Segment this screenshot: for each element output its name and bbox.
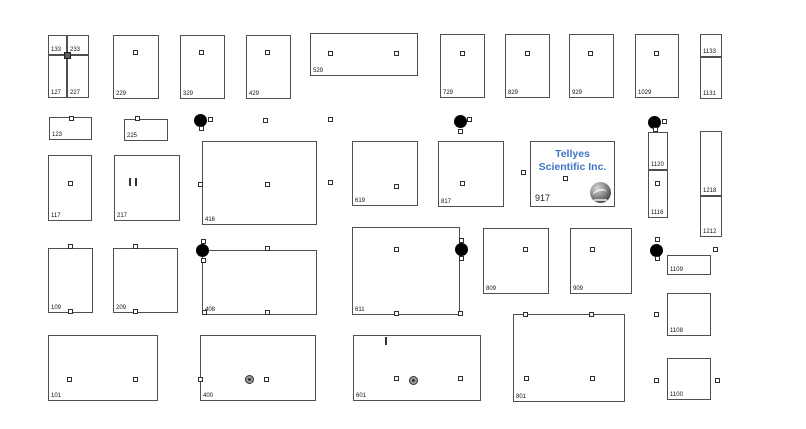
booth-number-label: 1120: [651, 162, 664, 168]
booth-number-label: 801: [516, 394, 526, 400]
square-marker-icon: [265, 50, 270, 55]
square-marker-icon: [265, 182, 270, 187]
booth-225[interactable]: 225: [124, 119, 168, 141]
booth-917-tellyes[interactable]: Tellyes Scientific Inc. 917: [530, 141, 615, 207]
booth-127[interactable]: 127: [48, 55, 67, 98]
booth-number-label: 1109: [670, 267, 683, 273]
square-marker-icon: [265, 246, 270, 251]
booth-1109[interactable]: 1109: [667, 255, 711, 275]
square-marker-icon: [198, 182, 203, 187]
exhibitor-name-line2: Scientific Inc.: [531, 161, 614, 174]
square-marker-icon: [525, 51, 530, 56]
square-marker-icon: [394, 51, 399, 56]
pillar-icon: [245, 375, 254, 384]
square-marker-icon: [199, 50, 204, 55]
booth-number-label: 225: [127, 133, 137, 139]
booth-601[interactable]: 601: [353, 335, 481, 401]
booth-number-label: 1131: [703, 91, 716, 97]
booth-number-label: 1108: [670, 328, 683, 334]
booth-number-label: 117: [51, 213, 61, 219]
square-marker-icon: [201, 239, 206, 244]
square-marker-icon: [198, 377, 203, 382]
booth-227[interactable]: 227: [67, 55, 89, 98]
square-marker-icon: [69, 116, 74, 121]
booth-1131[interactable]: 1131: [700, 57, 722, 99]
column-dot-icon: [196, 244, 209, 257]
booth-number-label: 729: [443, 90, 453, 96]
booth-829[interactable]: 829: [505, 34, 550, 98]
square-marker-icon: [68, 309, 73, 314]
booth-number-label: 127: [51, 90, 61, 96]
booth-number-label: 529: [313, 68, 323, 74]
booth-1133[interactable]: 1133: [700, 34, 722, 57]
booth-101[interactable]: 101: [48, 335, 158, 401]
square-marker-icon: [202, 310, 207, 315]
booth-number-label: 227: [70, 90, 80, 96]
square-marker-icon: [67, 377, 72, 382]
booth-number-label: 133: [51, 47, 61, 53]
square-marker-icon: [201, 258, 206, 263]
square-marker-icon: [655, 181, 660, 186]
square-marker-icon: [590, 376, 595, 381]
square-marker-icon: [133, 377, 138, 382]
booth-number-label: 809: [486, 286, 496, 292]
booth-217[interactable]: 217: [114, 155, 180, 221]
booth-number-label: 601: [356, 393, 366, 399]
booth-number-label: 829: [508, 90, 518, 96]
globe-logo-icon: [590, 182, 611, 203]
booth-611[interactable]: 611: [352, 227, 460, 315]
booth-1120[interactable]: 1120: [648, 132, 668, 170]
booth-number-label: 429: [249, 91, 259, 97]
square-marker-icon: [521, 170, 526, 175]
square-marker-icon: [68, 244, 73, 249]
square-marker-icon: [458, 129, 463, 134]
booth-1212[interactable]: 1212: [700, 196, 722, 237]
square-marker-icon: [328, 117, 333, 122]
square-marker-icon: [394, 184, 399, 189]
booth-408[interactable]: 408: [202, 250, 317, 315]
booth-529[interactable]: 529: [310, 33, 418, 76]
column-dot-icon: [455, 243, 468, 256]
square-marker-icon: [264, 377, 269, 382]
square-marker-icon: [590, 247, 595, 252]
square-marker-icon: [524, 376, 529, 381]
square-marker-icon: [655, 237, 660, 242]
booth-817[interactable]: 817: [438, 141, 504, 207]
column-dot-icon: [454, 115, 467, 128]
floorplan-canvas: Tellyes Scientific Inc. 917 133233127227…: [0, 0, 806, 429]
square-marker-icon: [589, 312, 594, 317]
booth-number-label: 1116: [651, 210, 663, 216]
booth-number-label: 217: [117, 213, 127, 219]
square-marker-icon: [523, 247, 528, 252]
booth-809[interactable]: 809: [483, 228, 549, 294]
booth-1100[interactable]: 1100: [667, 358, 711, 400]
booth-1108[interactable]: 1108: [667, 293, 711, 336]
booth-number-label: 1100: [670, 392, 683, 398]
exhibitor-name-line1: Tellyes: [531, 148, 614, 161]
square-marker-icon: [459, 238, 464, 243]
booth-1116[interactable]: 1116: [648, 170, 668, 218]
square-marker-icon: [133, 244, 138, 249]
square-marker-icon: [563, 176, 568, 181]
booth-number-label: 233: [70, 47, 80, 53]
square-marker-icon: [394, 247, 399, 252]
booth-329[interactable]: 329: [180, 35, 225, 99]
booth-1218[interactable]: 1218: [700, 131, 722, 196]
exhibitor-name: Tellyes Scientific Inc.: [531, 148, 614, 173]
square-marker-icon: [653, 127, 658, 132]
square-marker-icon: [199, 126, 204, 131]
booth-429[interactable]: 429: [246, 35, 291, 99]
square-marker-icon: [467, 117, 472, 122]
booth-number-label: 101: [51, 393, 61, 399]
booth-1029[interactable]: 1029: [635, 34, 679, 98]
booth-number-label: 416: [205, 217, 215, 223]
square-marker-icon: [208, 117, 213, 122]
dark-square-marker-icon: [64, 52, 71, 59]
booth-number-label: 408: [205, 307, 215, 313]
square-marker-icon: [459, 256, 464, 261]
tick-mark-icon: [385, 337, 387, 345]
square-marker-icon: [133, 309, 138, 314]
booth-416[interactable]: 416: [202, 141, 317, 225]
booth-number-label: 1212: [703, 229, 716, 235]
square-marker-icon: [458, 376, 463, 381]
square-marker-icon: [654, 378, 659, 383]
square-marker-icon: [655, 256, 660, 261]
booth-729[interactable]: 729: [440, 34, 485, 98]
square-marker-icon: [654, 51, 659, 56]
booth-number-label: 929: [572, 90, 582, 96]
square-marker-icon: [458, 311, 463, 316]
booth-number-label: 123: [52, 132, 62, 138]
square-marker-icon: [394, 311, 399, 316]
square-marker-icon: [135, 116, 140, 121]
square-marker-icon: [588, 51, 593, 56]
booth-929[interactable]: 929: [569, 34, 614, 98]
booth-229[interactable]: 229: [113, 35, 159, 99]
square-marker-icon: [328, 180, 333, 185]
booth-909[interactable]: 909: [570, 228, 632, 294]
square-marker-icon: [713, 247, 718, 252]
square-marker-icon: [68, 181, 73, 186]
booth-number-label: 917: [535, 193, 550, 203]
booth-801[interactable]: 801: [513, 314, 625, 402]
square-marker-icon: [523, 312, 528, 317]
square-marker-icon: [133, 50, 138, 55]
square-marker-icon: [662, 119, 667, 124]
square-marker-icon: [460, 181, 465, 186]
booth-209[interactable]: 209: [113, 248, 178, 313]
square-marker-icon: [394, 376, 399, 381]
pillar-icon: [409, 376, 418, 385]
booth-number-label: 229: [116, 91, 126, 97]
booth-number-label: 1029: [638, 90, 651, 96]
booth-number-label: 1218: [703, 188, 716, 194]
double-tick-icon: [129, 178, 137, 186]
booth-number-label: 209: [116, 305, 126, 311]
booth-number-label: 817: [441, 199, 451, 205]
booth-400[interactable]: 400: [200, 335, 316, 401]
square-marker-icon: [265, 310, 270, 315]
square-marker-icon: [460, 51, 465, 56]
square-marker-icon: [715, 378, 720, 383]
booth-number-label: 400: [203, 393, 213, 399]
booth-109[interactable]: 109: [48, 248, 93, 313]
square-marker-icon: [654, 312, 659, 317]
booth-117[interactable]: 117: [48, 155, 92, 221]
square-marker-icon: [328, 51, 333, 56]
booth-number-label: 109: [51, 305, 61, 311]
booth-number-label: 1133: [703, 49, 716, 55]
square-marker-icon: [263, 118, 268, 123]
booth-number-label: 611: [355, 307, 365, 313]
booth-number-label: 619: [355, 198, 365, 204]
booth-619[interactable]: 619: [352, 141, 418, 206]
booth-number-label: 329: [183, 91, 193, 97]
booth-number-label: 909: [573, 286, 583, 292]
